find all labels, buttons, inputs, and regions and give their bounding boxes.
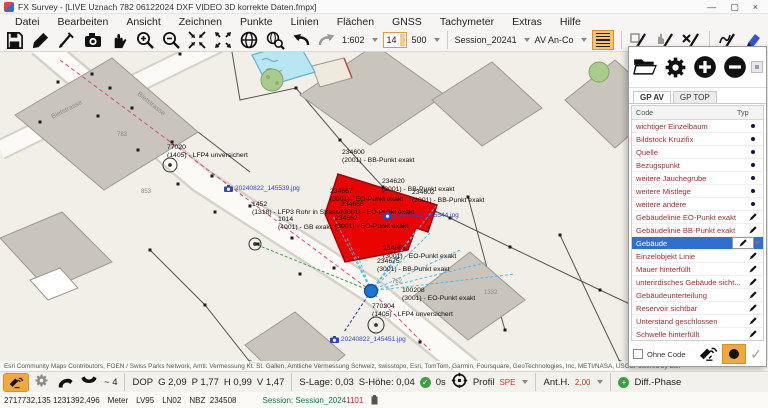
code-panel: GP AVGP TOP Code Typ wichtiger Einzelbau… — [628, 46, 767, 367]
spinner-value: 14 — [387, 35, 397, 45]
point-number: 234667 — [330, 188, 403, 196]
code-table: Code Typ wichtiger Einzelbaum Bildstock … — [631, 105, 764, 341]
undo-icon[interactable] — [290, 30, 311, 51]
typ-cell — [743, 226, 763, 234]
maximize-button[interactable]: ▢ — [730, 2, 739, 12]
camera-icon — [330, 336, 339, 343]
line-type-pen-icon — [749, 226, 757, 234]
typ-cell — [743, 252, 763, 260]
panel-tab[interactable]: GP AV — [633, 91, 671, 103]
point-type-icon — [751, 124, 755, 128]
menu-item[interactable]: Tachymeter — [431, 16, 503, 28]
spinner-arrows-icon[interactable] — [400, 34, 405, 46]
menu-item[interactable]: Ansicht — [117, 16, 169, 28]
pan-hand-icon[interactable] — [108, 30, 129, 51]
profil-label: Profil — [473, 377, 495, 388]
typ-cell — [743, 265, 763, 273]
code-row-label: Mauer hinterfüllt — [632, 265, 743, 274]
code-row[interactable]: Bezugspunkt — [632, 159, 763, 172]
building-number-label: 853 — [141, 189, 151, 195]
building-number-label: 762 — [392, 279, 402, 285]
code-row[interactable]: Unterstand geschlossen — [632, 315, 763, 328]
line-type-pen-icon — [749, 265, 757, 273]
point-number: 234600 — [342, 149, 415, 157]
confirm-check-icon[interactable]: ✓ — [750, 347, 762, 361]
settings-gear-icon[interactable] — [662, 53, 689, 81]
line-type-pen-icon — [749, 278, 757, 286]
code-row-label: Reservoir sichtbar — [632, 304, 743, 313]
code-row[interactable]: Gebäudeunterteilung — [632, 289, 763, 302]
code-row-label: weitere Mistlege — [632, 187, 743, 196]
gnss-status-bar: ~ 4 DOP G 2,09 P 1,77 H 0,99 V 1,47 S-La… — [0, 371, 768, 392]
code-row[interactable]: unterirdisches Gebäude sicht... — [632, 276, 763, 289]
snap-dropdown-icon[interactable] — [434, 38, 440, 42]
code-row-label: Gebäudelinie EO-Punkt exakt — [632, 213, 743, 222]
code-table-header: Code Typ — [632, 106, 763, 120]
point-number: 234602 — [412, 189, 485, 197]
code-row-label: Bezugspunkt — [632, 161, 743, 170]
vdop-value: V 1,47 — [257, 377, 284, 388]
map-point-label: 234602 (2001) - BB-Punkt exakt — [412, 189, 485, 204]
code-row[interactable]: Gebäudelinie BB-Punkt exakt — [632, 224, 763, 237]
profil-dropdown-icon[interactable] — [522, 380, 528, 384]
zoom-extent-icon[interactable] — [212, 30, 233, 51]
photo-link[interactable]: 20240822_145544.jpg — [383, 212, 459, 219]
code-row-label: Gebäudelinie BB-Punkt exakt — [632, 226, 743, 235]
minimize-button[interactable]: — — [707, 2, 716, 12]
code-row[interactable]: Mauer hinterfüllt — [632, 263, 763, 276]
menu-item[interactable]: Zeichnen — [170, 16, 231, 28]
snap-value: 500 — [412, 35, 427, 45]
typ-cell — [743, 317, 763, 325]
layers-button[interactable] — [592, 30, 614, 50]
session-value: Session_2024 — [295, 396, 346, 405]
typ-cell — [743, 124, 763, 128]
point-type-icon — [751, 137, 755, 141]
point-type-icon — [751, 176, 755, 180]
antenna-dropdown-icon[interactable] — [597, 380, 603, 384]
code-row-label: weitere Jauchegrube — [632, 174, 743, 183]
building-number-label: 1332 — [484, 290, 497, 296]
point-type-icon — [751, 163, 755, 167]
photo-filename: 20240822_145544.jpg — [394, 212, 459, 219]
code-row-label: Einzelobjekt Linie — [632, 252, 743, 261]
photo-link[interactable]: 20240822_145539.jpg — [224, 185, 300, 192]
photo-filename: 20240822_145451.jpg — [341, 336, 406, 343]
compass-target-icon[interactable] — [451, 372, 468, 392]
typ-cell — [743, 137, 763, 141]
height-system: LN02 — [162, 396, 181, 405]
menu-item[interactable]: Datei — [6, 16, 49, 28]
correction-age: 0s — [436, 377, 446, 388]
line-type-pen-icon — [749, 317, 757, 325]
nbz-label: NBZ — [189, 396, 205, 405]
point-type-icon — [751, 150, 755, 154]
typ-cell — [743, 213, 763, 221]
gdop-value: G 2,09 — [158, 377, 187, 388]
ohne-code-label: Ohne Code — [647, 350, 685, 359]
point-description: (3001) - EO-Punkt exakt — [402, 295, 475, 303]
point-number: 234620 — [382, 178, 455, 186]
map-point-label: 100208 (3001) - EO-Punkt exakt — [402, 287, 475, 302]
code-panel-tabs: GP AVGP TOP — [629, 88, 766, 104]
title-bar: FX Survey - [LIVE Uznach 782 06122024 DX… — [0, 0, 768, 14]
code-row[interactable]: Schwelle hinterfüllt — [632, 328, 763, 341]
antenna-height-value[interactable]: 2,00 — [575, 378, 591, 387]
connect-phone-icon[interactable] — [54, 373, 74, 391]
panel-tab[interactable]: GP TOP — [673, 91, 717, 103]
dop-label: DOP — [132, 377, 153, 388]
scale-dropdown-icon[interactable] — [372, 38, 378, 42]
menu-item[interactable]: Flächen — [328, 16, 383, 28]
coordinate-bar: 2717732,135 1231392,496 Meter LV95 LN02 … — [0, 392, 768, 408]
typ-cell — [743, 291, 763, 299]
code-row-label: Gebäudeunterteilung — [632, 291, 743, 300]
add-circle-icon[interactable] — [692, 53, 719, 81]
line-type-pen-icon — [739, 239, 747, 247]
line-type-pen-icon — [749, 252, 757, 260]
point-size-spinner[interactable]: 14 — [383, 32, 407, 48]
point-number: 770204 — [372, 303, 453, 311]
camera-icon — [383, 212, 392, 219]
fix-status-check-icon: ✓ — [420, 377, 431, 388]
diff-phase-status-icon: + — [618, 377, 629, 388]
line-type-pen-icon — [749, 304, 757, 312]
building-number-label: 783 — [117, 132, 127, 138]
map-point-label: 770204 (1405) - LFP4 unversichert — [372, 303, 453, 318]
map-point-label: 1452 (1318) - LFP3 Rohr in Strasse — [252, 201, 343, 216]
code-row-label: Schwelle hinterfüllt — [632, 330, 743, 339]
save-icon[interactable] — [4, 30, 25, 51]
street-label: Bietstrasse — [50, 99, 83, 121]
point-description: (1405) - LFP4 unversichert — [167, 152, 248, 160]
measure-point-button[interactable] — [722, 344, 746, 364]
code-row[interactable]: weitere Mistlege — [632, 185, 763, 198]
session-highlight: 1101 — [346, 396, 363, 405]
row-dropdown-icon[interactable] — [754, 241, 760, 245]
code-row[interactable]: Bildstock Kruzifix — [632, 133, 763, 146]
menu-item[interactable]: Extras — [503, 16, 551, 28]
gnss-settings-gear-icon[interactable] — [34, 373, 49, 391]
code-row-label: wichtiger Einzelbaum — [632, 122, 743, 131]
code-row-label: Gebäude — [632, 239, 732, 248]
column-code: Code — [632, 108, 737, 117]
point-type-icon — [751, 202, 755, 206]
typ-cell — [743, 176, 763, 180]
code-panel-toolbar — [629, 47, 766, 88]
menu-item[interactable]: Bearbeiten — [49, 16, 118, 28]
code-list-dropdown-icon[interactable] — [581, 38, 587, 42]
cursor-coordinates: 2717732,135 1231392,496 — [4, 396, 100, 405]
camera-icon — [224, 185, 233, 192]
typ-cell — [743, 189, 763, 193]
point-description: (2001) - BB-Punkt exakt — [412, 197, 485, 205]
open-folder-icon[interactable] — [632, 53, 659, 81]
pen-tool-icon[interactable] — [56, 30, 77, 51]
code-list-select[interactable]: AV An-Co — [535, 35, 574, 45]
photo-filename: 20240822_145539.jpg — [235, 185, 300, 192]
point-description: (3001) - BB-Punkt exakt — [377, 266, 450, 274]
zoom-in-icon[interactable] — [134, 30, 155, 51]
code-row[interactable]: weitere Jauchegrube — [632, 172, 763, 185]
point-description: (4001) - GB exakt — [278, 224, 332, 232]
line-type-pen-icon — [749, 330, 757, 338]
antenna-height-label: Ant.H. — [543, 377, 569, 388]
s-lage-value: S-Lage: 0,03 — [299, 377, 353, 388]
typ-cell — [743, 278, 763, 286]
photo-link[interactable]: 20240822_145451.jpg — [330, 336, 406, 343]
session-dropdown-icon[interactable] — [524, 38, 530, 42]
zoom-window-icon[interactable] — [186, 30, 207, 51]
globe-icon[interactable] — [238, 30, 259, 51]
globe-search-icon[interactable] — [264, 30, 285, 51]
menu-item[interactable]: Linien — [282, 16, 328, 28]
app-icon — [4, 2, 14, 12]
disconnect-phone-icon[interactable] — [79, 373, 99, 391]
point-type-icon — [751, 189, 755, 193]
menu-bar: DateiBearbeitenAnsichtZeichnenPunkteLini… — [0, 14, 768, 29]
ohne-code-checkbox[interactable] — [633, 349, 643, 359]
edit-pencil-icon[interactable] — [30, 30, 51, 51]
code-row-label: Bildstock Kruzifix — [632, 135, 743, 144]
code-row[interactable]: Reservoir sichtbar — [632, 302, 763, 315]
line-type-pen-icon — [749, 213, 757, 221]
typ-cell — [743, 150, 763, 154]
panel-options-icon[interactable] — [751, 61, 763, 73]
session-select[interactable]: Session_20241 — [455, 35, 517, 45]
reference-frame: LV95 — [136, 396, 154, 405]
code-row[interactable]: Gebäudelinie EO-Punkt exakt — [632, 211, 763, 224]
point-description: (3001) - EO-Punkt exakt — [335, 223, 408, 231]
session-label: Session: — [262, 396, 293, 405]
gnss-measure-icon[interactable] — [698, 344, 718, 365]
column-typ: Typ — [737, 108, 763, 117]
hdop-value: H 0,99 — [224, 377, 252, 388]
diff-phase-label: Diff.-Phase — [634, 377, 681, 388]
map-point-label: 234675 (3001) - BB-Punkt exakt — [377, 258, 450, 273]
code-row[interactable]: Gebäude — [632, 237, 763, 250]
unit-label: Meter — [108, 396, 128, 405]
gnss-status-icon[interactable] — [3, 373, 29, 392]
code-row-label: weitere andere — [632, 200, 743, 209]
scale-value: 1:602 — [342, 35, 365, 45]
point-number: 234675 — [377, 258, 450, 266]
code-row[interactable]: Quelle — [632, 146, 763, 159]
close-button[interactable]: × — [753, 2, 758, 12]
camera-icon[interactable] — [82, 30, 103, 51]
code-row[interactable]: weitere andere — [632, 198, 763, 211]
window-title: FX Survey - [LIVE Uznach 782 06122024 DX… — [18, 2, 317, 12]
typ-cell — [743, 304, 763, 312]
point-number: 234663 — [383, 245, 456, 253]
point-number: 100208 — [402, 287, 475, 295]
pdop-value: P 1,77 — [192, 377, 219, 388]
menu-item[interactable]: GNSS — [383, 16, 431, 28]
code-panel-footer: Ohne Code ✓ — [629, 342, 766, 366]
typ-cell — [743, 330, 763, 338]
typ-cell — [743, 202, 763, 206]
typ-cell — [732, 237, 754, 249]
code-row[interactable]: Einzelobjekt Linie — [632, 250, 763, 263]
s-hoehe-value: S-Höhe: 0,04 — [359, 377, 415, 388]
zoom-out-icon[interactable] — [160, 30, 181, 51]
profil-value[interactable]: SPE — [499, 378, 515, 387]
code-row-label: unterirdisches Gebäude sicht... — [632, 278, 743, 287]
code-row-label: Quelle — [632, 148, 743, 157]
map-point-label: 234600 (2001) - BB-Punkt exakt — [342, 149, 415, 164]
point-description: (1405) - LFP4 unversichert — [372, 311, 453, 319]
remove-circle-icon[interactable] — [722, 53, 749, 81]
typ-cell — [743, 163, 763, 167]
street-label: Bietstrasse — [136, 91, 167, 118]
redo-icon[interactable] — [316, 30, 337, 51]
attribution-text: Esri Community Maps Contributors, FOEN /… — [4, 363, 634, 370]
point-description: (2001) - BB-Punkt exakt — [342, 157, 415, 165]
satellite-count: ~ 4 — [104, 377, 117, 388]
menu-item[interactable]: Punkte — [231, 16, 282, 28]
map-point-label: 1014 (4001) - GB exakt — [278, 216, 332, 231]
code-row-label: Unterstand geschlossen — [632, 317, 743, 326]
menu-item[interactable]: Hilfe — [551, 16, 590, 28]
point-number: 1014 — [278, 216, 332, 224]
map-point-label: 77020 (1405) - LFP4 unversichert — [167, 144, 248, 159]
line-type-pen-icon — [749, 291, 757, 299]
nbz-value: 234508 — [210, 396, 237, 405]
point-number: 77020 — [167, 144, 248, 152]
code-row[interactable]: wichtiger Einzelbaum — [632, 120, 763, 133]
session-storage-icon — [371, 395, 378, 405]
point-number: 234666 — [341, 201, 414, 209]
